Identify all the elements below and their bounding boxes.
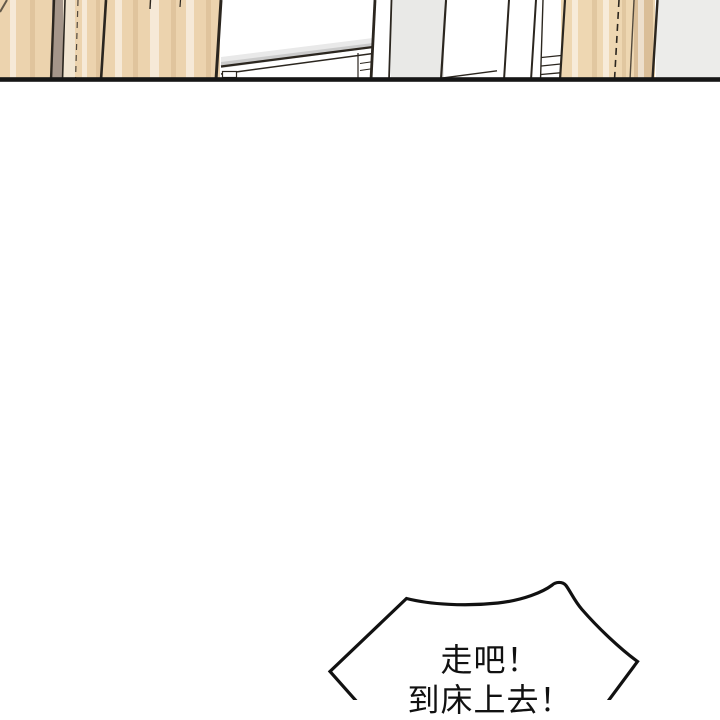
speech-bubble [0,0,720,700]
comic-page: 走吧！ 到床上去！ [0,0,720,700]
panel-bottom-border [0,77,720,82]
ladder-rungs [541,0,562,80]
panels-right [391,0,720,80]
gray-panel [391,0,444,80]
speech-bubble-line1: 走吧！ [370,640,610,680]
speech-bubble-text: 走吧！ 到床上去！ [370,640,610,720]
wall-baseboard-box [223,72,237,78]
comic-panel-artwork [0,0,720,84]
speech-bubble-line2: 到床上去！ [370,680,610,720]
wood-panels-left [0,0,220,80]
floor-edge-diagonal [440,71,497,79]
gray-panel-right [656,0,720,80]
